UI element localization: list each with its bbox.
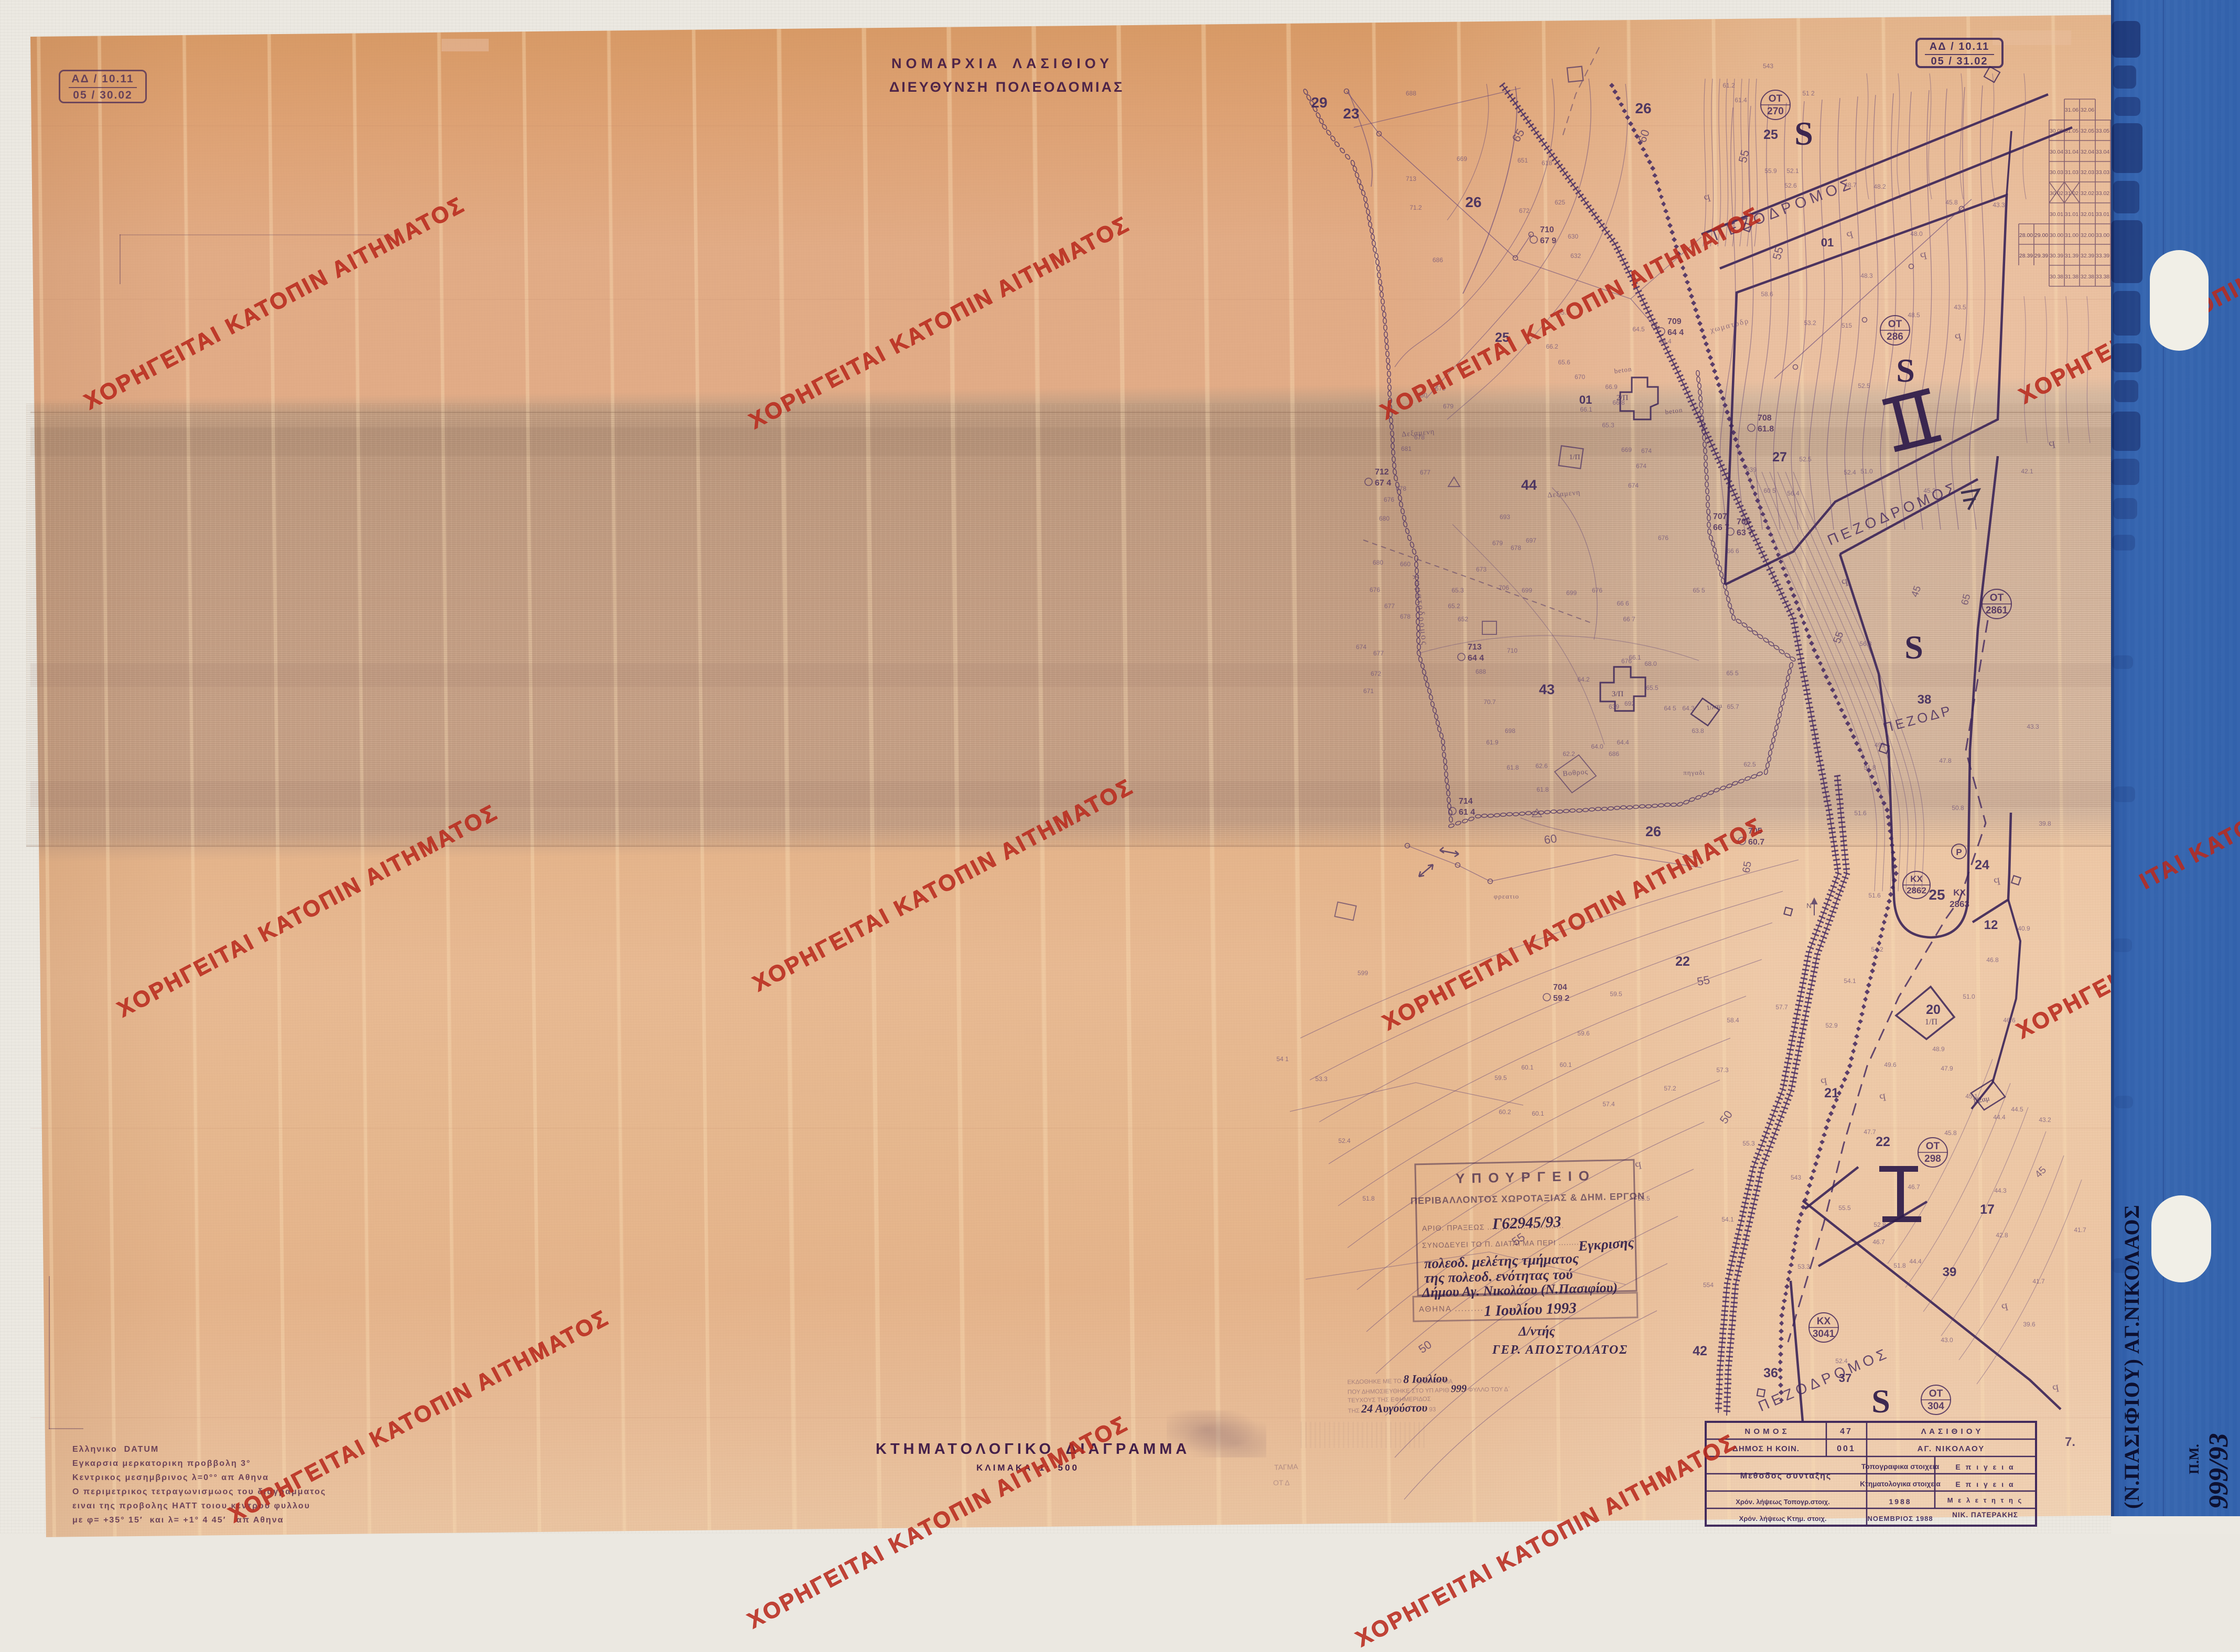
svg-text:Ε π ι γ ε ι α: Ε π ι γ ε ι α (1955, 1463, 2015, 1471)
svg-text:ΝΙΚ. ΠΑΤΕΡΑΚΗΣ: ΝΙΚ. ΠΑΤΕΡΑΚΗΣ (1952, 1511, 2018, 1519)
svg-text:1988: 1988 (1889, 1497, 1911, 1506)
svg-text:Κτηματολογικα στοιχεια: Κτηματολογικα στοιχεια (1860, 1480, 1941, 1488)
svg-text:30.38: 30.38 (2050, 274, 2063, 280)
svg-text:ΔΗΜΟΣ Η ΚΟΙΝ.: ΔΗΜΟΣ Η ΚΟΙΝ. (1732, 1444, 1800, 1453)
svg-text:Λ Α Σ Ι Θ Ι Ο Υ: Λ Α Σ Ι Θ Ι Ο Υ (1921, 1427, 1981, 1436)
svg-text:32.02: 32.02 (2081, 190, 2094, 197)
svg-text:7.: 7. (2065, 1435, 2075, 1449)
svg-text:33.39: 33.39 (2096, 253, 2109, 259)
svg-text:ΑΓ. ΝΙΚΟΛΑΟΥ: ΑΓ. ΝΙΚΟΛΑΟΥ (1918, 1444, 1985, 1453)
svg-text:33.03: 33.03 (2096, 169, 2109, 176)
svg-text:47: 47 (1840, 1427, 1853, 1436)
svg-text:Μ ε λ ε τ η τ η ς: Μ ε λ ε τ η τ η ς (1947, 1496, 2023, 1504)
svg-text:32.39: 32.39 (2081, 253, 2094, 259)
svg-text:31.02: 31.02 (2065, 190, 2079, 197)
svg-text:29.39: 29.39 (2034, 253, 2048, 259)
svg-text:33.02: 33.02 (2096, 190, 2109, 197)
svg-text:30.01: 30.01 (2050, 211, 2063, 218)
svg-text:30.05: 30.05 (2050, 128, 2063, 134)
svg-text:30.03: 30.03 (2050, 169, 2063, 176)
svg-text:32.38: 32.38 (2081, 274, 2094, 280)
svg-text:28.39: 28.39 (2019, 253, 2033, 259)
svg-text:Χρόν. λήψεως Τοπογρ.στοιχ.: Χρόν. λήψεως Τοπογρ.στοιχ. (1736, 1498, 1830, 1506)
svg-text:30.39: 30.39 (2050, 253, 2063, 259)
svg-text:31.05: 31.05 (2065, 128, 2079, 134)
svg-text:33.00: 33.00 (2096, 232, 2109, 239)
svg-text:33.05: 33.05 (2096, 128, 2109, 134)
svg-text:31.00: 31.00 (2065, 232, 2079, 239)
svg-text:Ε π ι γ ε ι α: Ε π ι γ ε ι α (1955, 1480, 2015, 1488)
svg-text:31.01: 31.01 (2065, 211, 2079, 218)
svg-text:31.38: 31.38 (2065, 274, 2079, 280)
svg-text:28.00: 28.00 (2019, 232, 2033, 239)
svg-text:33.38: 33.38 (2096, 274, 2109, 280)
svg-text:31.39: 31.39 (2065, 253, 2079, 259)
svg-text:32.00: 32.00 (2081, 232, 2094, 239)
svg-text:31.04: 31.04 (2065, 149, 2079, 155)
svg-text:29.00: 29.00 (2034, 232, 2048, 239)
svg-text:32.06: 32.06 (2081, 107, 2094, 113)
svg-text:Μεθοδος συνταξης: Μεθοδος συνταξης (1740, 1472, 1832, 1481)
svg-text:001: 001 (1837, 1444, 1856, 1453)
svg-text:32.03: 32.03 (2081, 169, 2094, 176)
svg-text:Ν Ο Μ Ο Σ: Ν Ο Μ Ο Σ (1744, 1427, 1787, 1436)
svg-text:30.00: 30.00 (2050, 232, 2063, 239)
svg-text:Τοπογραφικα στοιχεια: Τοπογραφικα στοιχεια (1861, 1462, 1940, 1471)
svg-text:ΝΟΕΜΒΡΙΟΣ 1988: ΝΟΕΜΒΡΙΟΣ 1988 (1867, 1515, 1933, 1523)
svg-text:Χρόν. λήψεως Κτημ. στοιχ.: Χρόν. λήψεως Κτημ. στοιχ. (1739, 1515, 1827, 1523)
svg-text:31.06: 31.06 (2065, 107, 2079, 113)
svg-text:33.04: 33.04 (2096, 149, 2109, 155)
svg-text:30.04: 30.04 (2050, 149, 2063, 155)
svg-text:32.01: 32.01 (2081, 211, 2094, 218)
svg-text:32.04: 32.04 (2081, 149, 2094, 155)
svg-text:33.01: 33.01 (2096, 211, 2109, 218)
svg-text:31.03: 31.03 (2065, 169, 2079, 176)
svg-text:32.05: 32.05 (2081, 128, 2094, 134)
svg-text:30.02: 30.02 (2050, 190, 2063, 197)
